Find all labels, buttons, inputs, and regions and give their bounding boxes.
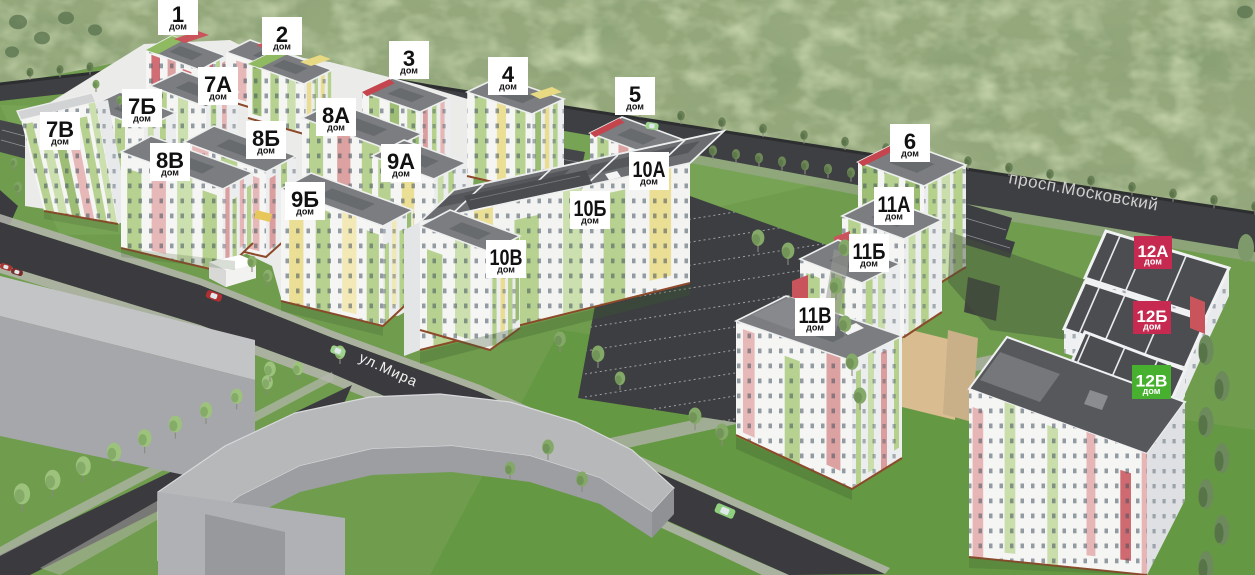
svg-text:дом: дом — [626, 102, 644, 112]
svg-text:дом: дом — [273, 42, 291, 52]
svg-text:дом: дом — [296, 207, 314, 217]
svg-text:дом: дом — [885, 212, 903, 222]
svg-text:дом: дом — [499, 82, 517, 92]
svg-text:дом: дом — [581, 216, 599, 226]
svg-text:дом: дом — [400, 66, 418, 76]
svg-text:дом: дом — [1143, 386, 1161, 396]
svg-text:дом: дом — [169, 22, 187, 32]
svg-text:дом: дом — [209, 92, 227, 102]
svg-text:дом: дом — [161, 168, 179, 178]
svg-text:дом: дом — [51, 137, 69, 147]
svg-text:дом: дом — [901, 149, 919, 159]
svg-text:дом: дом — [392, 169, 410, 179]
svg-text:дом: дом — [497, 265, 515, 275]
svg-text:дом: дом — [640, 177, 658, 187]
svg-text:дом: дом — [806, 323, 824, 333]
svg-text:дом: дом — [257, 146, 275, 156]
svg-text:дом: дом — [1144, 256, 1162, 266]
svg-text:дом: дом — [1143, 321, 1161, 331]
svg-text:дом: дом — [133, 114, 151, 124]
svg-text:дом: дом — [327, 123, 345, 133]
svg-text:дом: дом — [860, 259, 878, 269]
